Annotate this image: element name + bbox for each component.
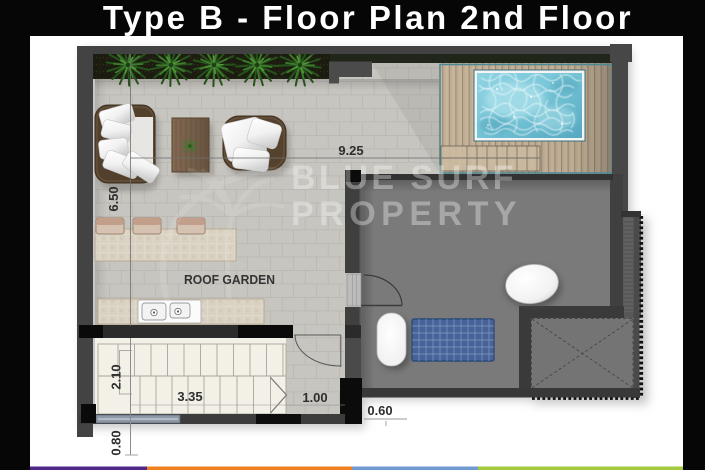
svg-text:6.50: 6.50	[106, 186, 121, 211]
svg-text:PROPERTY: PROPERTY	[291, 195, 522, 233]
svg-text:3.35: 3.35	[177, 389, 202, 404]
svg-text:9.25: 9.25	[338, 143, 363, 158]
svg-text:BLUE SURF: BLUE SURF	[291, 159, 517, 197]
svg-text:0.80: 0.80	[109, 430, 124, 455]
svg-text:2.10: 2.10	[109, 364, 124, 389]
svg-text:0.60: 0.60	[367, 403, 392, 418]
svg-text:Type B - Floor Plan 2nd Floor: Type B - Floor Plan 2nd Floor	[103, 0, 633, 36]
svg-text:1.00: 1.00	[302, 390, 327, 405]
svg-text:ROOF GARDEN: ROOF GARDEN	[184, 273, 275, 287]
